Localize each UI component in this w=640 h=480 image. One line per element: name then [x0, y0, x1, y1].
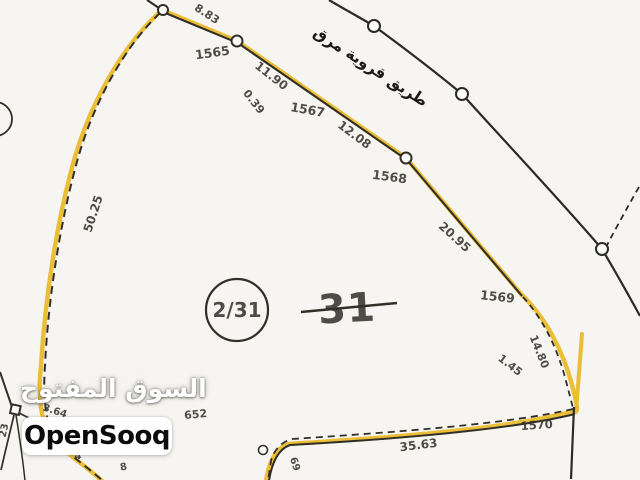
measure-14-80: 14.80: [527, 333, 552, 370]
plot-boundary-highlight: [40, 10, 577, 480]
land-survey-map-photo: 2/31 31 طريق قروية مرق 1565 1567 1568 15…: [0, 0, 640, 480]
road-point-marker: [596, 243, 608, 255]
road-point-marker: [456, 88, 468, 100]
clipped-parcel-circle: [0, 102, 12, 136]
small-number-69: 69: [287, 456, 302, 473]
measure-20-95: 20.95: [436, 219, 474, 255]
measure-35-63: 35.63: [399, 436, 438, 455]
road-point-marker: [368, 20, 380, 32]
small-number-8: 8: [119, 462, 128, 474]
survey-point-marker: [158, 5, 168, 15]
map-canvas: 2/31 31 طريق قروية مرق 1565 1567 1568 15…: [0, 0, 640, 480]
corner-point-marker: [259, 446, 268, 455]
watermark-arabic-logo: السوق المفتوح: [20, 374, 176, 403]
point-label-1570: 1570: [520, 417, 553, 433]
parcel-line-bottom-right-vertical: [571, 407, 574, 479]
measure-1-45: 1.45: [495, 352, 524, 379]
survey-point-marker: [232, 36, 243, 47]
point-label-1567: 1567: [289, 99, 326, 120]
square-survey-marker: [10, 404, 21, 415]
point-label-1568: 1568: [371, 167, 408, 187]
measure-0-39: 0.39: [240, 87, 267, 116]
road-branch-dashed: [606, 187, 639, 247]
point-label-1565: 1565: [194, 43, 231, 63]
watermark-latin-logo: OpenSooq: [24, 421, 170, 451]
measure-50-25: 50.25: [81, 194, 106, 234]
neighbor-line-1: [0, 372, 12, 407]
survey-point-marker: [401, 153, 412, 164]
boundary-right-dashed-curve: [523, 297, 573, 409]
road-name-label: طريق قروية مرق: [310, 23, 431, 110]
point-label-652: 652: [184, 407, 208, 422]
road-centerline: [329, 0, 640, 316]
watermark-logo-box: OpenSooq: [22, 417, 172, 455]
plot-boundary-highlight-stub: [576, 334, 582, 412]
point-label-1569: 1569: [479, 287, 515, 306]
parcel-ref-label: 2/31: [212, 298, 261, 322]
